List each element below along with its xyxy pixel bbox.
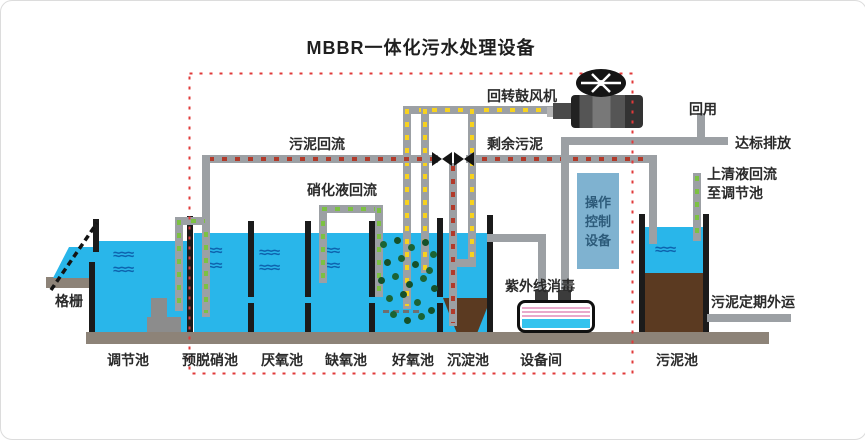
lift-pump-base <box>147 317 181 332</box>
control-cabinet-text: 操作 <box>585 193 611 212</box>
pipe-sludge-removal <box>707 314 791 322</box>
tank-label-predenitrification: 预脱硝池 <box>182 350 238 370</box>
blower-fan-icon <box>576 69 626 97</box>
supernatant-return-line2: 至调节池 <box>707 185 763 201</box>
water-wave-icon: ≈≈ <box>208 244 221 256</box>
wall-aerobic-settler-foot <box>437 303 443 332</box>
tank-label-aerobic: 好氧池 <box>392 350 434 370</box>
wall-anoxic-aerobic-foot <box>369 303 375 332</box>
mbbr-media-dot <box>392 273 399 280</box>
water-wave-icon: ≈≈≈ <box>113 263 133 275</box>
control-cabinet: 操作 控制 设备 <box>577 173 619 269</box>
uv-disinfection-unit <box>517 300 595 333</box>
pipe-nitrified-recycle-top <box>319 205 383 213</box>
mbbr-media-dot <box>426 267 433 274</box>
uv-channel-water <box>522 319 590 328</box>
mbbr-media-dot <box>404 317 411 324</box>
pipe-lift-vertical <box>175 217 183 311</box>
tank-label-regulation: 调节池 <box>107 350 149 370</box>
mbbr-media-dot <box>418 313 425 320</box>
discharge-label: 达标排放 <box>735 133 791 153</box>
mbbr-media-dot <box>412 261 419 268</box>
tank-label-anoxic: 缺氧池 <box>325 350 367 370</box>
wall-predenit-anaerobic <box>248 221 254 297</box>
pipe-sludge-return-header <box>206 155 438 163</box>
control-cabinet-text: 设备 <box>585 231 611 250</box>
mbbr-media-dot <box>431 285 438 292</box>
sludge-tank-left-wall <box>639 214 645 332</box>
aeration-diffuser <box>383 310 419 313</box>
mbbr-media-dot <box>420 275 427 282</box>
sludge-tank-sludge <box>645 273 703 332</box>
wall-regulation-predenit <box>187 216 193 332</box>
wall-anaerobic-anoxic-foot <box>305 303 311 332</box>
blower-label: 回转鼓风机 <box>487 86 557 106</box>
settler-right-wall <box>487 215 493 332</box>
pipe-excess-sludge-drop <box>649 155 657 244</box>
control-cabinet-text: 控制 <box>585 212 611 231</box>
tank-label-sludge-tank: 污泥池 <box>656 350 698 370</box>
screen-post-wall <box>93 219 99 252</box>
mbbr-media-dot <box>394 237 401 244</box>
mbbr-media-dot <box>408 244 415 251</box>
mbbr-media-dot <box>422 239 429 246</box>
mbbr-media-dot <box>398 255 405 262</box>
main-foundation-slab <box>86 332 769 344</box>
nitrified-recycle-label: 硝化液回流 <box>307 180 377 200</box>
screen-label: 格栅 <box>55 291 83 311</box>
uv-lamp-stripes <box>522 305 590 320</box>
wall-anaerobic-anoxic <box>305 221 311 297</box>
pipe-sludge-riser <box>449 163 457 326</box>
pipe-nitrified-recycle-left <box>319 205 327 283</box>
pipe-return-downcomer <box>202 155 210 317</box>
uv-disinfection-label: 紫外线消毒 <box>505 276 575 296</box>
pipe-air-drop-2 <box>421 106 429 273</box>
pipe-supernatant-return <box>693 173 701 241</box>
mbbr-process-diagram: MBBR一体化污水处理设备 ≈≈≈ ≈≈≈ ≈≈ ≈≈ ≈≈≈ ≈≈≈ ≈≈≈ … <box>0 0 865 440</box>
water-wave-icon: ≈≈≈ <box>259 246 279 258</box>
wall-predenit-anaerobic-foot <box>248 303 254 332</box>
blower-body <box>571 95 643 128</box>
sludge-return-label: 污泥回流 <box>289 134 345 154</box>
water-wave-icon: ≈≈≈ <box>259 261 279 273</box>
wall-aerobic-settler <box>437 218 443 297</box>
mbbr-media-dot <box>430 251 437 258</box>
mbbr-media-dot <box>390 311 397 318</box>
water-wave-icon: ≈≈≈ <box>655 243 675 255</box>
diagram-overlay <box>1 1 865 439</box>
regulation-tank-left-wall <box>89 262 95 332</box>
tank-label-equipment-room: 设备间 <box>520 350 562 370</box>
supernatant-return-label: 上清液回流 至调节池 <box>707 165 777 203</box>
excess-sludge-label: 剩余污泥 <box>487 134 543 154</box>
water-wave-icon: ≈≈≈ <box>113 248 133 260</box>
mbbr-media-dot <box>428 307 435 314</box>
mbbr-media-dot <box>378 277 385 284</box>
pipe-air-drop-1 <box>403 106 411 309</box>
diagram-title: MBBR一体化污水处理设备 <box>241 34 601 60</box>
mbbr-media-dot <box>400 291 407 298</box>
mbbr-media-dot <box>406 281 413 288</box>
tank-label-settler: 沉淀池 <box>447 350 489 370</box>
mbbr-media-dot <box>384 259 391 266</box>
pipe-airlift-air <box>468 106 476 267</box>
mbbr-media-dot <box>414 299 421 306</box>
reuse-label: 回用 <box>689 99 717 119</box>
mbbr-media-dot <box>380 241 387 248</box>
supernatant-return-line1: 上清液回流 <box>707 166 777 182</box>
sludge-removal-label: 污泥定期外运 <box>711 292 795 312</box>
process-tanks-water <box>194 233 487 332</box>
tank-label-anaerobic: 厌氧池 <box>261 350 303 370</box>
mbbr-media-dot <box>386 295 393 302</box>
water-wave-icon: ≈≈ <box>208 259 221 271</box>
